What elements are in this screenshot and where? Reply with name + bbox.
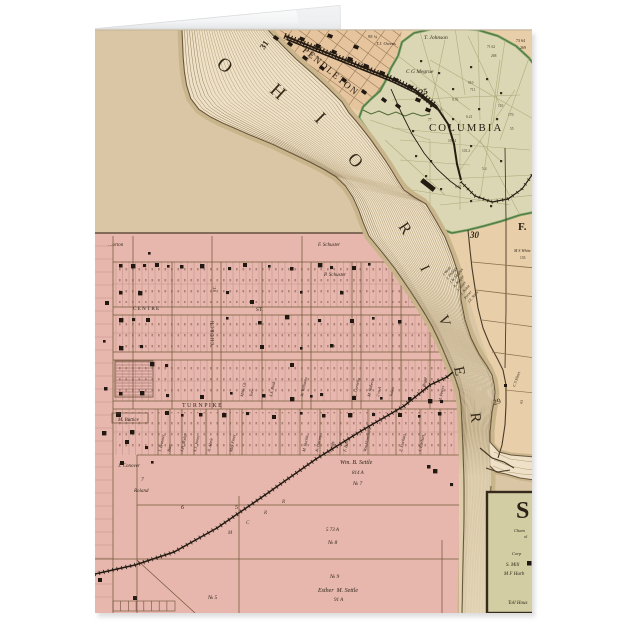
svg-text:M. Buttice: M. Buttice: [117, 418, 140, 423]
svg-text:P. Schuster: P. Schuster: [323, 273, 346, 278]
svg-text:814 A: 814 A: [352, 471, 365, 476]
svg-text:6: 6: [181, 505, 184, 511]
svg-text:Esther M. Settle: Esther M. Settle: [317, 588, 358, 594]
svg-text:9.76: 9.76: [452, 98, 458, 102]
svg-text:269: 269: [520, 45, 526, 50]
svg-text:Cham: Cham: [514, 528, 526, 533]
svg-text:8.10: 8.10: [455, 185, 461, 189]
svg-text:ST.: ST.: [256, 307, 263, 313]
svg-text:S: S: [516, 498, 529, 524]
svg-text:T. Johnson: T. Johnson: [424, 35, 448, 41]
svg-text:268: 268: [491, 54, 497, 58]
svg-text:101.2: 101.2: [462, 149, 470, 153]
svg-text:910: 910: [468, 81, 474, 85]
svg-text:133: 133: [520, 256, 526, 260]
svg-text:M F Hurb: M F Hurb: [503, 572, 525, 577]
svg-text:№ 9: № 9: [329, 574, 340, 580]
svg-text:№ 7: № 7: [352, 481, 363, 487]
svg-text:F.: F.: [518, 221, 527, 233]
svg-text:C G Megrue: C G Megrue: [406, 69, 434, 75]
svg-text:Toll Hous: Toll Hous: [508, 601, 527, 606]
svg-text:71 62: 71 62: [487, 45, 495, 49]
svg-text:711: 711: [470, 88, 475, 92]
svg-text:Corp: Corp: [512, 551, 522, 556]
svg-text:R: R: [281, 500, 285, 505]
svg-text:COLUMBIA: COLUMBIA: [429, 122, 503, 134]
svg-text:Wm. B. Settle: Wm. B. Settle: [340, 460, 373, 466]
svg-text:73 64: 73 64: [516, 38, 525, 43]
svg-text:5: 5: [235, 505, 238, 511]
svg-text:5 73 A: 5 73 A: [326, 528, 340, 533]
svg-text:95 ¼: 95 ¼: [368, 34, 378, 39]
svg-text:25: 25: [419, 87, 428, 97]
svg-text:…orton: …orton: [108, 243, 124, 248]
svg-text:77: 77: [428, 118, 432, 122]
svg-text:91 A: 91 A: [334, 598, 344, 603]
svg-text:30: 30: [469, 230, 480, 240]
svg-text:6.21: 6.21: [466, 115, 472, 119]
svg-text:№ 5: № 5: [207, 595, 218, 601]
svg-text:7: 7: [141, 477, 144, 483]
svg-text:5.4: 5.4: [482, 167, 487, 171]
svg-text:J. Conover: J. Conover: [118, 464, 140, 469]
svg-text:CENTRE: CENTRE: [133, 306, 160, 312]
svg-text:CHURCH: CHURCH: [211, 320, 216, 345]
svg-text:170: 170: [508, 113, 514, 117]
svg-text:M: M: [227, 531, 233, 536]
svg-text:M S White: M S White: [513, 248, 531, 253]
svg-text:55: 55: [510, 127, 514, 131]
svg-text:10.34: 10.34: [448, 139, 456, 143]
svg-text:R: R: [466, 412, 483, 424]
svg-text:8.4: 8.4: [437, 108, 442, 112]
svg-text:T.J. Owens: T.J. Owens: [376, 41, 396, 46]
svg-text:ST.: ST.: [212, 286, 217, 292]
svg-text:F. Schuster: F. Schuster: [317, 243, 340, 248]
svg-text:74: 74: [133, 595, 137, 600]
svg-text:R: R: [263, 511, 267, 516]
svg-text:S. Mill: S. Mill: [506, 563, 520, 568]
svg-text:T U R N P I K E: T U R N P I K E: [182, 403, 222, 409]
svg-text:№ 8: № 8: [327, 540, 338, 546]
svg-text:110: 110: [498, 104, 503, 108]
svg-text:Roland: Roland: [133, 489, 149, 494]
